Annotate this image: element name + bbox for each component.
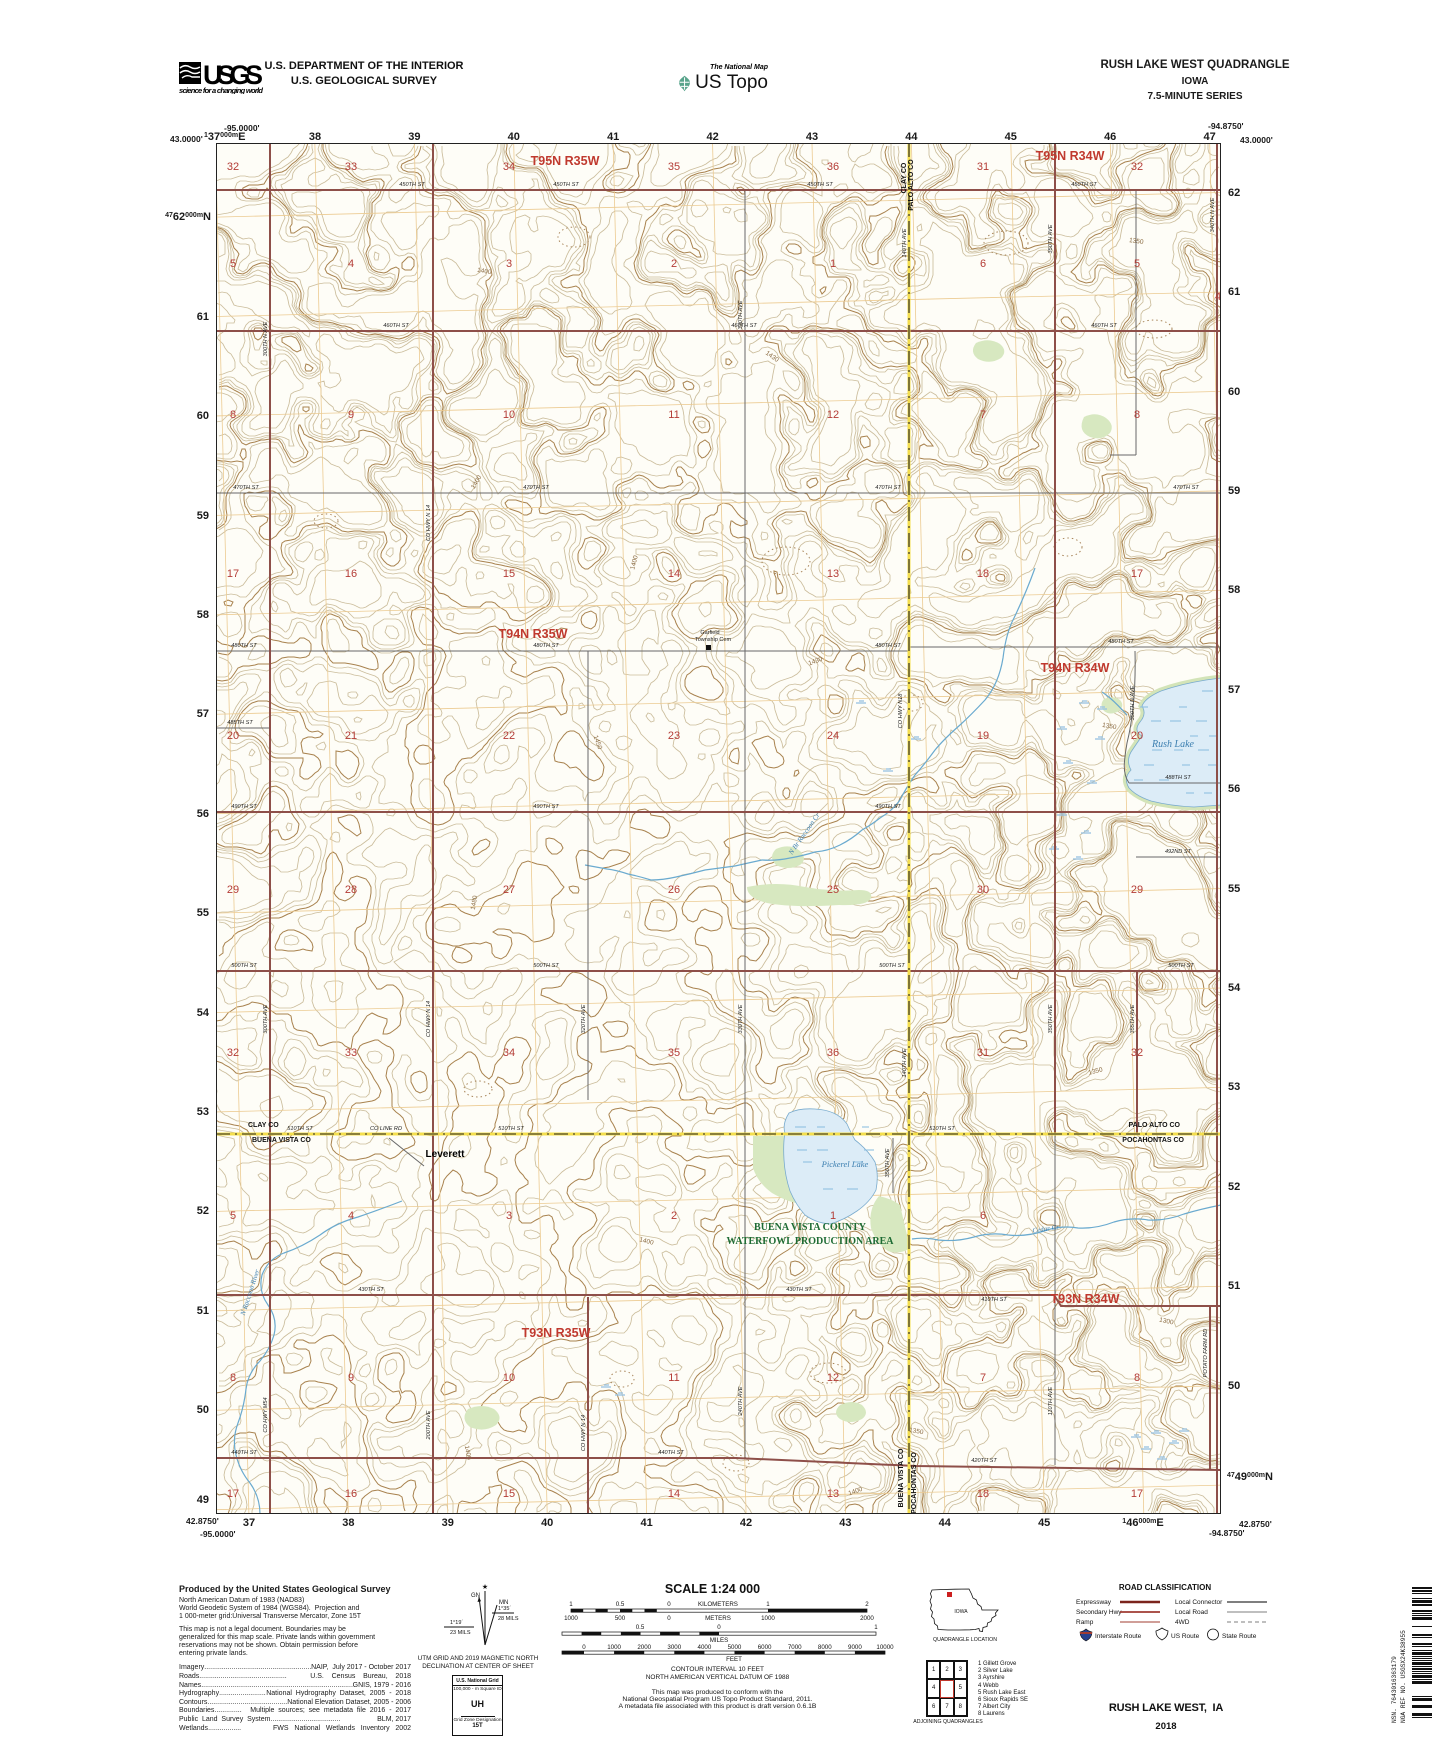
svg-text:34: 34 xyxy=(503,161,515,173)
svg-text:500TH ST: 500TH ST xyxy=(879,963,905,969)
svg-text:2000: 2000 xyxy=(860,1615,874,1622)
svg-text:9000: 9000 xyxy=(848,1644,862,1651)
svg-text:480TH ST: 480TH ST xyxy=(1108,639,1134,645)
svg-text:35: 35 xyxy=(668,161,680,173)
svg-text:470TH ST: 470TH ST xyxy=(875,485,901,491)
svg-text:5000: 5000 xyxy=(728,1644,742,1651)
svg-text:26: 26 xyxy=(668,884,680,896)
svg-text:355TH AVE: 355TH AVE xyxy=(1130,1004,1136,1033)
svg-text:8: 8 xyxy=(1134,409,1140,421)
svg-text:3: 3 xyxy=(506,258,512,270)
svg-text:5: 5 xyxy=(230,1210,236,1222)
svg-text:1000: 1000 xyxy=(607,1644,621,1651)
svg-text:140TH AVE: 140TH AVE xyxy=(902,1048,908,1077)
svg-text:7: 7 xyxy=(980,1372,986,1384)
svg-text:510TH ST: 510TH ST xyxy=(287,1126,313,1132)
svg-text:2000: 2000 xyxy=(637,1644,651,1651)
svg-text:23 MILS: 23 MILS xyxy=(450,1630,471,1636)
svg-text:1: 1 xyxy=(830,1210,836,1222)
svg-text:0: 0 xyxy=(582,1644,586,1651)
svg-text:1°35´: 1°35´ xyxy=(498,1606,511,1612)
svg-text:10: 10 xyxy=(503,409,515,421)
svg-text:140TH AVE: 140TH AVE xyxy=(902,228,908,257)
svg-text:300TH N AVE: 300TH N AVE xyxy=(263,321,269,356)
svg-text:★: ★ xyxy=(482,1583,488,1591)
svg-text:450TH ST: 450TH ST xyxy=(399,182,425,188)
svg-text:23: 23 xyxy=(668,730,680,742)
svg-text:6: 6 xyxy=(980,1210,986,1222)
svg-text:5: 5 xyxy=(1134,258,1140,270)
svg-text:8: 8 xyxy=(230,1372,236,1384)
svg-text:460TH ST: 460TH ST xyxy=(1091,323,1117,329)
svg-text:Interstate Route: Interstate Route xyxy=(1095,1633,1142,1640)
svg-text:0: 0 xyxy=(717,1624,721,1631)
svg-text:420TH ST: 420TH ST xyxy=(971,1458,997,1464)
svg-text:3000: 3000 xyxy=(667,1644,681,1651)
svg-text:Pickerel Lake: Pickerel Lake xyxy=(821,1159,869,1169)
svg-text:200TH AVE: 200TH AVE xyxy=(426,1410,432,1440)
svg-text:492ND ST: 492ND ST xyxy=(1165,849,1192,855)
svg-text:410TH ST: 410TH ST xyxy=(981,1297,1007,1303)
svg-text:240TH AVE: 240TH AVE xyxy=(738,1386,744,1416)
svg-text:20: 20 xyxy=(1131,730,1143,742)
svg-text:17: 17 xyxy=(1131,1488,1143,1500)
svg-text:PALO ALTO CO: PALO ALTO CO xyxy=(908,159,915,211)
svg-text:1: 1 xyxy=(874,1624,878,1631)
svg-text:CO HWY N 14: CO HWY N 14 xyxy=(426,505,432,541)
svg-text:GN: GN xyxy=(471,1593,480,1599)
svg-text:BUENA VISTA CO: BUENA VISTA CO xyxy=(898,1448,905,1507)
svg-text:1000: 1000 xyxy=(564,1615,578,1622)
svg-text:17: 17 xyxy=(1131,568,1143,580)
svg-text:Local Road: Local Road xyxy=(1175,1609,1208,1616)
svg-text:340TH N AVE: 340TH N AVE xyxy=(1210,197,1216,232)
svg-text:16: 16 xyxy=(345,568,357,580)
svg-text:NSN. 7643016363179: NSN. 7643016363179 xyxy=(1391,1656,1398,1723)
svg-text:CO LINE RD: CO LINE RD xyxy=(370,1126,402,1132)
svg-text:33: 33 xyxy=(345,161,357,173)
svg-text:12: 12 xyxy=(827,409,839,421)
svg-text:15: 15 xyxy=(503,568,515,580)
svg-text:US Route: US Route xyxy=(1171,1633,1200,1640)
svg-text:BUENA VISTA CO: BUENA VISTA CO xyxy=(252,1137,311,1144)
svg-text:350TH AVE: 350TH AVE xyxy=(1048,1004,1054,1033)
svg-text:19: 19 xyxy=(977,730,989,742)
svg-text:460TH ST: 460TH ST xyxy=(731,323,757,329)
svg-text:10: 10 xyxy=(503,1372,515,1384)
svg-text:8: 8 xyxy=(230,409,236,421)
svg-text:CO HWY N18: CO HWY N18 xyxy=(898,693,904,729)
svg-text:11: 11 xyxy=(668,1372,679,1384)
svg-text:16: 16 xyxy=(345,1488,357,1500)
svg-text:T93N R35W: T93N R35W xyxy=(522,1326,591,1340)
svg-text:0.5: 0.5 xyxy=(616,1601,625,1608)
svg-text:15: 15 xyxy=(503,1488,515,1500)
svg-text:32: 32 xyxy=(227,161,239,173)
svg-text:IOWA: IOWA xyxy=(954,1609,968,1615)
svg-text:18: 18 xyxy=(977,1488,989,1500)
svg-text:CO HWY M54: CO HWY M54 xyxy=(263,1397,269,1432)
svg-text:T95N R35W: T95N R35W xyxy=(531,154,600,168)
svg-text:470TH ST: 470TH ST xyxy=(233,485,259,491)
svg-text:7: 7 xyxy=(980,409,986,421)
svg-text:17: 17 xyxy=(227,1488,239,1500)
svg-text:6000: 6000 xyxy=(758,1644,772,1651)
svg-text:5: 5 xyxy=(230,258,236,270)
svg-text:480TH ST: 480TH ST xyxy=(231,643,257,649)
svg-text:0: 0 xyxy=(667,1615,671,1622)
svg-text:State Route: State Route xyxy=(1222,1633,1257,1640)
svg-text:35: 35 xyxy=(668,1047,680,1059)
svg-text:Leverett: Leverett xyxy=(426,1149,466,1160)
svg-text:31: 31 xyxy=(977,1047,989,1059)
svg-text:1000: 1000 xyxy=(761,1615,775,1622)
svg-text:22: 22 xyxy=(503,730,515,742)
svg-text:27: 27 xyxy=(503,884,515,896)
svg-text:Rush Lake: Rush Lake xyxy=(1151,739,1195,750)
svg-text:330TH AVE: 330TH AVE xyxy=(738,300,744,329)
svg-text:25: 25 xyxy=(827,884,839,896)
svg-text:29: 29 xyxy=(227,884,239,896)
svg-text:500TH ST: 500TH ST xyxy=(1168,963,1194,969)
svg-text:32: 32 xyxy=(1131,161,1143,173)
svg-text:CO HWY N 14: CO HWY N 14 xyxy=(581,1415,587,1451)
svg-text:BUENA VISTA COUNTY: BUENA VISTA COUNTY xyxy=(754,1222,867,1233)
svg-text:1: 1 xyxy=(830,258,836,270)
svg-text:CO HWY N 14: CO HWY N 14 xyxy=(426,1001,432,1037)
svg-text:440TH ST: 440TH ST xyxy=(658,1450,684,1456)
svg-text:4: 4 xyxy=(348,258,354,270)
svg-text:9: 9 xyxy=(348,409,354,421)
svg-text:METERS: METERS xyxy=(705,1615,731,1622)
svg-text:13: 13 xyxy=(827,568,839,580)
svg-text:440TH ST: 440TH ST xyxy=(231,1450,257,1456)
svg-text:MILES: MILES xyxy=(710,1637,729,1644)
svg-text:1°19´: 1°19´ xyxy=(450,1620,463,1626)
svg-text:488TH ST: 488TH ST xyxy=(1165,775,1191,781)
svg-text:510TH ST: 510TH ST xyxy=(929,1126,955,1132)
svg-text:450TH ST: 450TH ST xyxy=(807,182,833,188)
svg-text:330TH AVE: 330TH AVE xyxy=(738,1004,744,1033)
svg-text:24: 24 xyxy=(827,730,839,742)
svg-text:33: 33 xyxy=(345,1047,357,1059)
svg-text:500TH ST: 500TH ST xyxy=(533,963,559,969)
svg-text:320TH AVE: 320TH AVE xyxy=(581,1004,587,1033)
svg-text:480TH ST: 480TH ST xyxy=(533,643,559,649)
svg-text:430TH ST: 430TH ST xyxy=(358,1287,384,1293)
svg-text:36: 36 xyxy=(827,161,839,173)
svg-text:32: 32 xyxy=(227,1047,239,1059)
svg-text:17: 17 xyxy=(227,568,239,580)
svg-text:36: 36 xyxy=(827,1047,839,1059)
svg-text:1: 1 xyxy=(766,1601,770,1608)
svg-text:500TH ST: 500TH ST xyxy=(231,963,257,969)
svg-text:Ramp: Ramp xyxy=(1076,1619,1094,1626)
svg-text:20: 20 xyxy=(227,730,239,742)
svg-text:490TH ST: 490TH ST xyxy=(231,804,257,810)
svg-text:14: 14 xyxy=(668,568,680,580)
svg-text:4000: 4000 xyxy=(698,1644,712,1651)
svg-text:490TH ST: 490TH ST xyxy=(533,804,559,810)
svg-text:14: 14 xyxy=(668,1488,680,1500)
svg-text:0: 0 xyxy=(667,1601,671,1608)
svg-text:Township Cem: Township Cem xyxy=(695,637,731,643)
svg-text:T93N R34W: T93N R34W xyxy=(1051,1292,1120,1306)
svg-text:2: 2 xyxy=(671,258,677,270)
svg-text:350TH N AVE: 350TH N AVE xyxy=(1130,685,1136,720)
svg-text:485TH ST: 485TH ST xyxy=(227,720,253,726)
svg-text:28: 28 xyxy=(345,884,357,896)
svg-text:30: 30 xyxy=(977,884,989,896)
svg-text:CLAY CO: CLAY CO xyxy=(248,1122,279,1129)
svg-text:8000: 8000 xyxy=(818,1644,832,1651)
svg-text:29: 29 xyxy=(1131,884,1143,896)
svg-text:POCAHONTAS CO: POCAHONTAS CO xyxy=(1122,1137,1184,1144)
svg-text:18: 18 xyxy=(977,568,989,580)
svg-text:KILOMETERS: KILOMETERS xyxy=(698,1601,738,1608)
svg-text:470TH ST: 470TH ST xyxy=(1173,485,1199,491)
svg-text:460TH ST: 460TH ST xyxy=(383,323,409,329)
svg-text:PALO ALTO CO: PALO ALTO CO xyxy=(1129,1122,1181,1129)
svg-text:430TH ST: 430TH ST xyxy=(786,1287,812,1293)
svg-text:13: 13 xyxy=(827,1488,839,1500)
svg-text:32: 32 xyxy=(1131,1047,1143,1059)
svg-text:9: 9 xyxy=(348,1372,354,1384)
svg-text:FEET: FEET xyxy=(726,1656,742,1663)
svg-text:21: 21 xyxy=(345,730,357,742)
svg-text:CLAY CO: CLAY CO xyxy=(901,162,908,193)
svg-text:470TH ST: 470TH ST xyxy=(523,485,549,491)
svg-text:450TH ST: 450TH ST xyxy=(553,182,579,188)
svg-text:T94N R35W: T94N R35W xyxy=(499,627,568,641)
svg-text:4WD: 4WD xyxy=(1175,1619,1190,1626)
svg-text:NGA REF NO. USGSX24K38955: NGA REF NO. USGSX24K38955 xyxy=(1400,1630,1407,1723)
svg-text:POCAHONTAS CO: POCAHONTAS CO xyxy=(911,1452,918,1514)
svg-text:0.5: 0.5 xyxy=(636,1624,645,1631)
svg-text:4: 4 xyxy=(348,1210,354,1222)
svg-text:2: 2 xyxy=(865,1601,869,1608)
svg-text:12: 12 xyxy=(827,1372,839,1384)
svg-text:510TH ST: 510TH ST xyxy=(498,1126,524,1132)
svg-text:Garfield: Garfield xyxy=(700,630,719,636)
svg-text:11: 11 xyxy=(668,409,679,421)
svg-text:350TH AVE: 350TH AVE xyxy=(1048,224,1054,253)
svg-text:8: 8 xyxy=(1134,1372,1140,1384)
svg-text:7000: 7000 xyxy=(788,1644,802,1651)
svg-text:110TH AVE: 110TH AVE xyxy=(1048,1386,1054,1415)
svg-text:T95N R34W: T95N R34W xyxy=(1036,149,1105,163)
svg-text:Secondary Hwy: Secondary Hwy xyxy=(1076,1609,1122,1616)
svg-text:T94N R34W: T94N R34W xyxy=(1041,661,1110,675)
svg-text:480TH ST: 480TH ST xyxy=(875,643,901,649)
svg-text:31: 31 xyxy=(977,161,989,173)
svg-text:34: 34 xyxy=(503,1047,515,1059)
svg-text:10000: 10000 xyxy=(876,1644,894,1651)
svg-text:3: 3 xyxy=(506,1210,512,1222)
svg-text:350TH AVE: 350TH AVE xyxy=(885,1148,891,1177)
svg-text:science for a changing world: science for a changing world xyxy=(179,86,263,94)
svg-text:Expressway: Expressway xyxy=(1076,1599,1112,1606)
svg-text:1: 1 xyxy=(569,1601,573,1608)
svg-text:Local Connector: Local Connector xyxy=(1175,1599,1223,1606)
svg-text:6: 6 xyxy=(980,258,986,270)
svg-text:WATERFOWL PRODUCTION AREA: WATERFOWL PRODUCTION AREA xyxy=(726,1236,894,1247)
svg-text:28 MILS: 28 MILS xyxy=(498,1616,519,1622)
svg-text:450TH ST: 450TH ST xyxy=(1071,182,1097,188)
svg-text:300TH AVE: 300TH AVE xyxy=(263,1004,269,1033)
svg-text:2: 2 xyxy=(671,1210,677,1222)
svg-text:500: 500 xyxy=(615,1615,626,1622)
svg-text:490TH ST: 490TH ST xyxy=(875,804,901,810)
svg-text:POTATO FARM RD: POTATO FARM RD xyxy=(1203,1329,1209,1378)
